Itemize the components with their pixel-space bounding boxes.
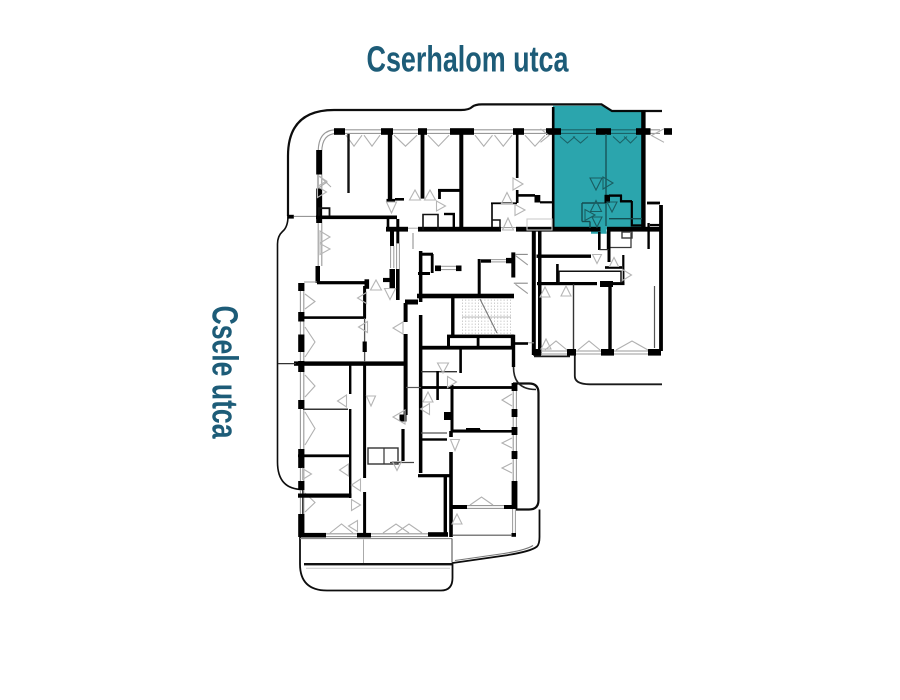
svg-text:Cserhalom utca: Cserhalom utca xyxy=(367,39,570,80)
svg-text:Csele utca: Csele utca xyxy=(205,306,246,440)
